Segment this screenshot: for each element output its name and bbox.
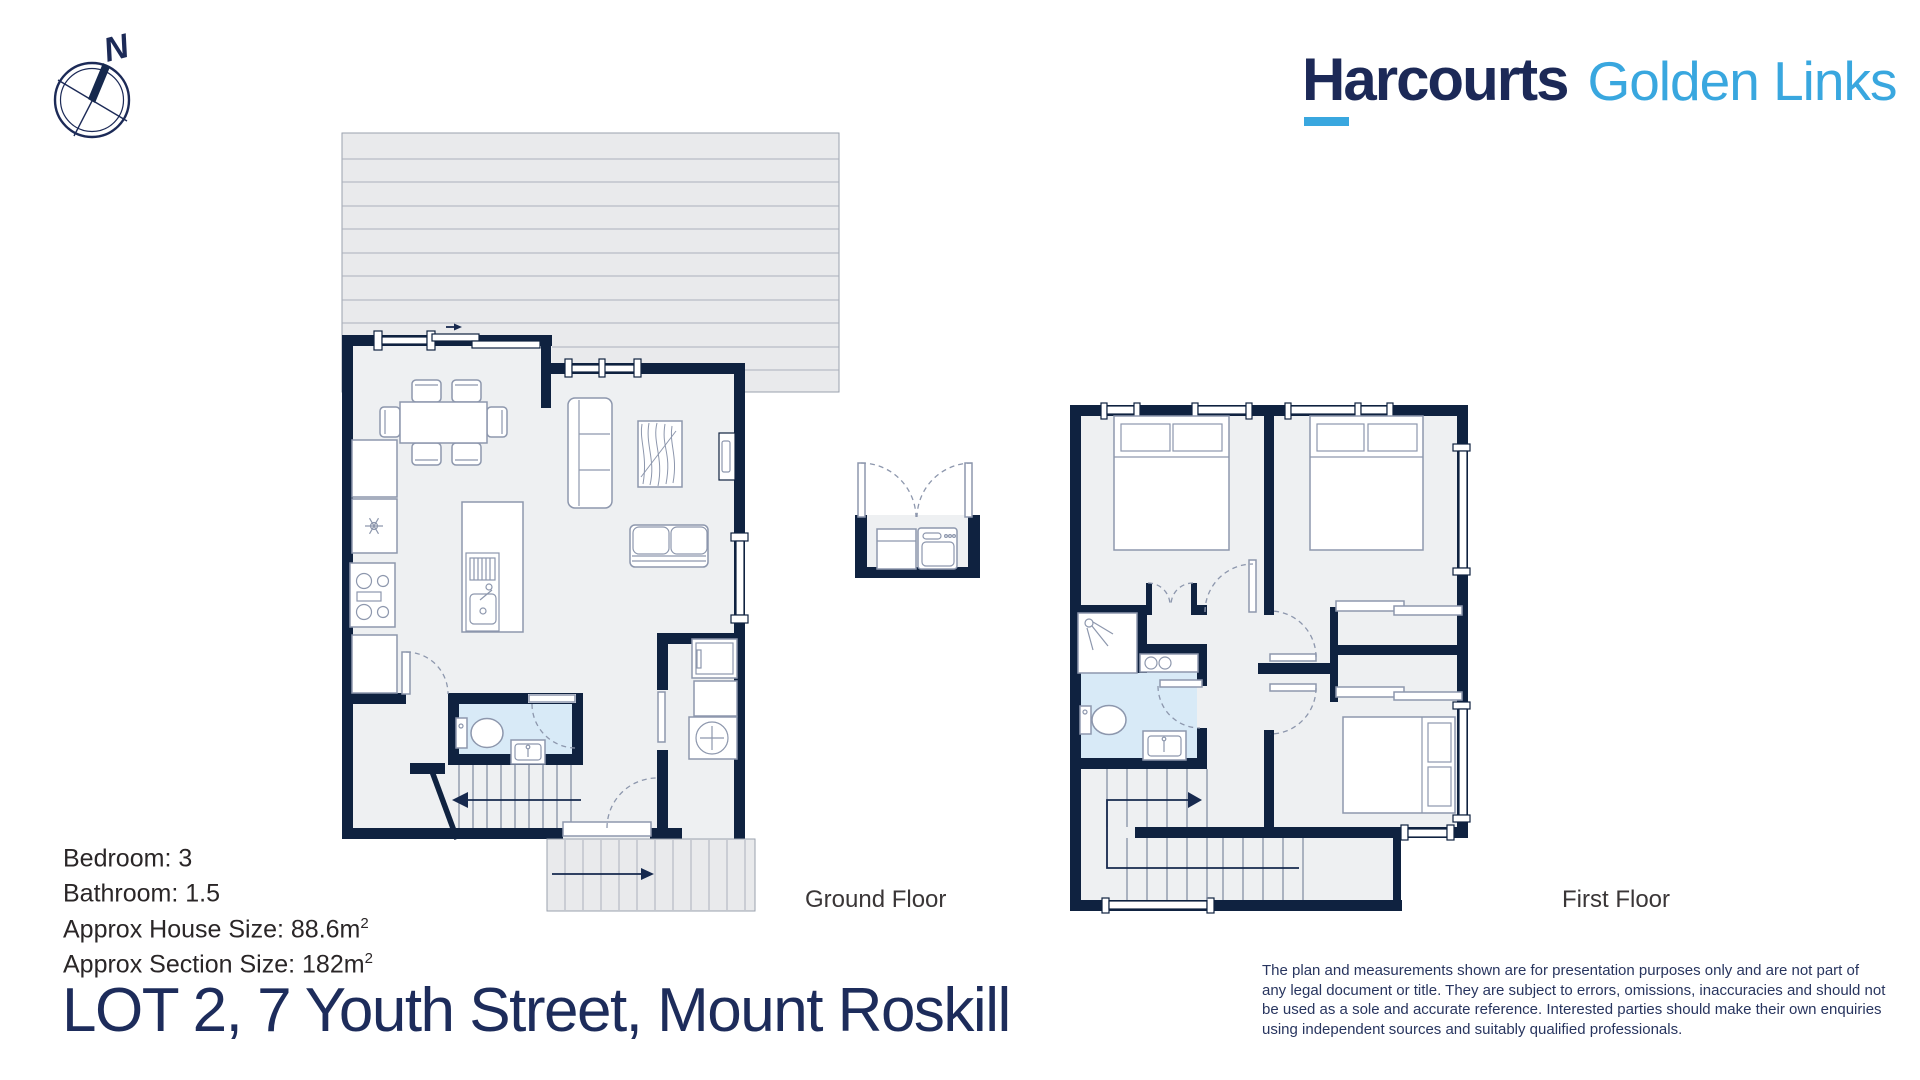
- property-details: Bedroom: 3 Bathroom: 1.5 Approx House Si…: [63, 838, 373, 979]
- logo-underline: [1304, 117, 1349, 126]
- bathroom-door-leaf: [1160, 680, 1202, 687]
- office-name: Golden Links: [1587, 50, 1896, 112]
- stove-icon: [350, 563, 395, 627]
- first-floor-plan: [1070, 403, 1470, 913]
- kitchen-bench: [352, 440, 397, 497]
- bedroom2-door-leaf: [1270, 654, 1316, 661]
- bedroom1-door-leaf: [1249, 560, 1256, 612]
- bench: [877, 529, 916, 569]
- ground-floor-plan: [342, 133, 839, 911]
- wc-door-leaf: [529, 695, 575, 702]
- kitchen-island: [462, 502, 523, 632]
- fridge-icon: [352, 499, 397, 553]
- detail-bedrooms: Bedroom: 3: [63, 838, 373, 873]
- chair: [380, 407, 400, 437]
- address-title: LOT 2, 7 Youth Street, Mount Roskill: [62, 975, 1010, 1046]
- basin-icon: [1143, 731, 1186, 760]
- basin-icon: [511, 740, 545, 764]
- bed-double-3: [1343, 717, 1455, 813]
- chair: [412, 443, 441, 465]
- slider-door: [432, 334, 479, 341]
- floor-plan-sheet: N: [0, 0, 1920, 1080]
- door-leaf: [965, 463, 972, 517]
- bedroom3-door-leaf: [1270, 684, 1316, 691]
- bed-double-1: [1114, 416, 1229, 550]
- chair: [487, 407, 507, 437]
- first-floor-label: First Floor: [1562, 886, 1670, 914]
- ground-floor-label: Ground Floor: [805, 886, 946, 914]
- laundry: [689, 639, 737, 759]
- door-leaf: [858, 463, 865, 517]
- chair: [452, 443, 481, 465]
- toilet-icon: [456, 718, 503, 748]
- chair: [452, 380, 481, 402]
- sofa: [568, 398, 612, 508]
- cabinet: [692, 639, 737, 678]
- sofa-2: [630, 525, 708, 567]
- compass-n-label: N: [100, 27, 134, 70]
- dining-table: [400, 402, 487, 443]
- detail-bathrooms: Bathroom: 1.5: [63, 873, 373, 908]
- detail-house-size: Approx House Size: 88.6m2: [63, 909, 373, 944]
- compass-icon: N: [55, 27, 134, 137]
- shower-icon: [1078, 613, 1137, 673]
- toilet-icon: [1080, 706, 1126, 735]
- harcourts-logo: HarcourtsGolden Links: [1302, 50, 1896, 110]
- hall-door-leaf: [402, 652, 410, 694]
- detail-section-size: Approx Section Size: 182m2: [63, 944, 373, 979]
- utility-cupboard: [855, 463, 980, 578]
- vanity-counter: [1140, 654, 1198, 672]
- bed-double-2: [1310, 416, 1423, 550]
- laundry-tub-icon: [689, 717, 737, 759]
- cabinet: [694, 681, 737, 716]
- kitchen-bench-2: [352, 635, 397, 693]
- brand-name: Harcourts: [1302, 46, 1567, 113]
- rug: [638, 421, 682, 487]
- washing-machine-icon: [918, 528, 957, 569]
- chair: [412, 380, 441, 402]
- disclaimer-text: The plan and measurements shown are for …: [1262, 961, 1886, 1039]
- entry-porch: [547, 839, 755, 911]
